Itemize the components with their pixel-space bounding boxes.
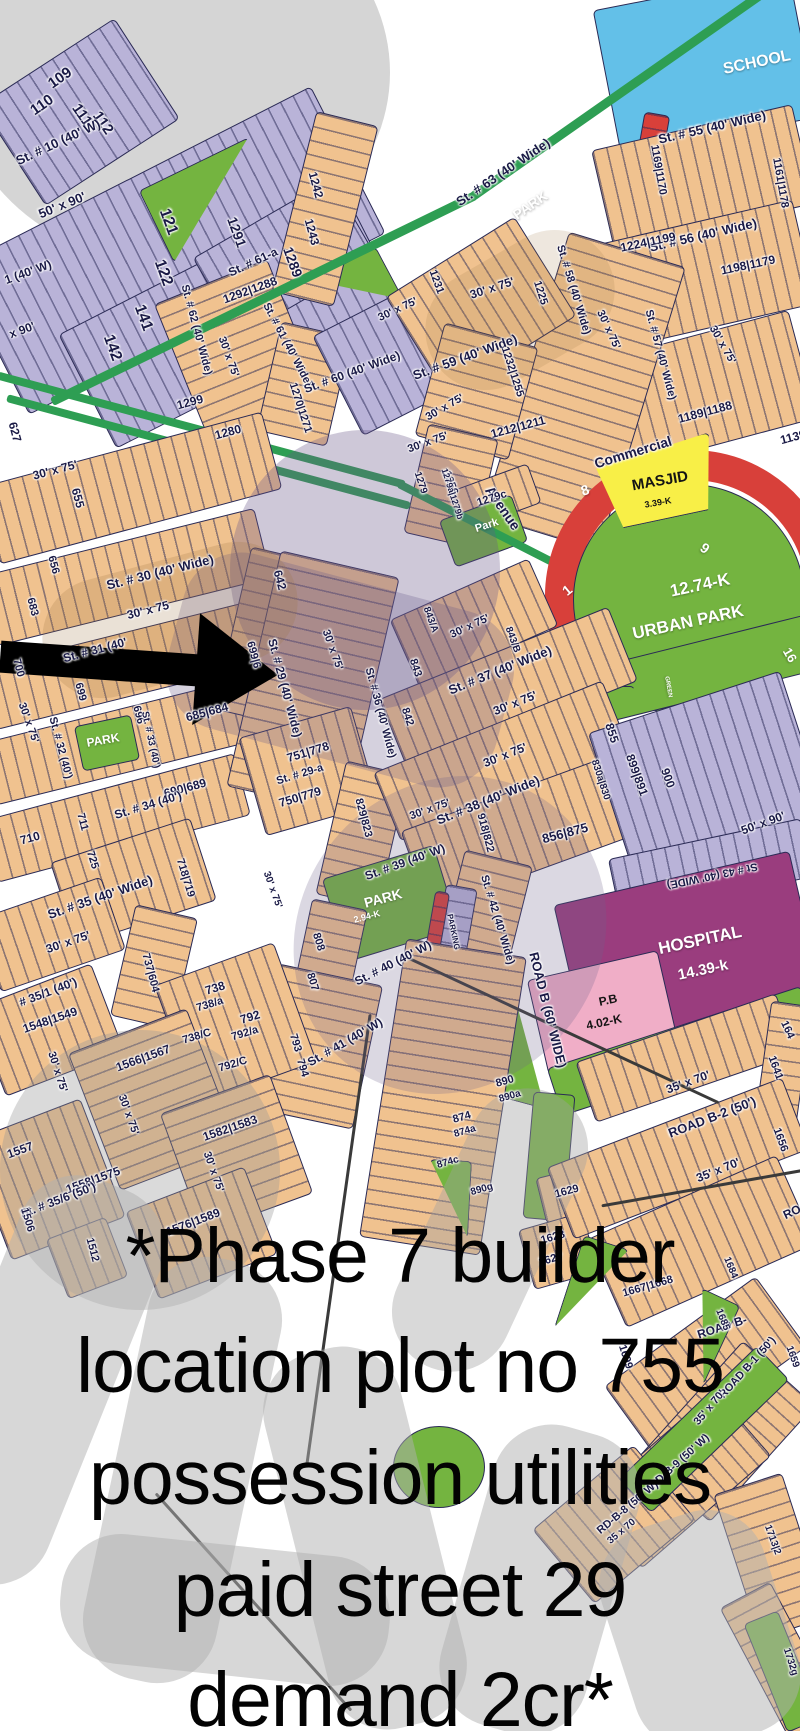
- caption-line-2: location plot no 755: [0, 1328, 800, 1405]
- map-label: 30' x 75': [261, 870, 283, 909]
- map-label: P.B: [598, 992, 619, 1008]
- map-label: 627: [7, 421, 24, 443]
- caption-line-3: possession utilities: [0, 1440, 800, 1517]
- map-label: PARK: [510, 188, 550, 222]
- caption-line-4: paid street 29: [0, 1552, 800, 1629]
- map-screenshot: 109110111112St. # 10 (40' W)50' x 90'121…: [0, 0, 800, 1731]
- caption-line-5: demand 2cr*: [0, 1662, 800, 1731]
- caption-line-1: *Phase 7 builder: [0, 1218, 800, 1295]
- map-label: 1139: [779, 428, 800, 446]
